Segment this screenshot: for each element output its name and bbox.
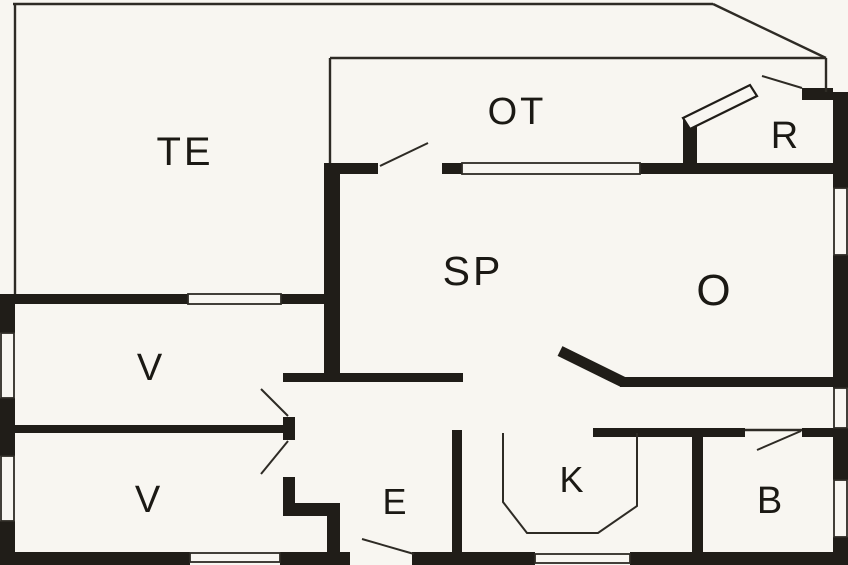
window [1,333,14,398]
wall-segment [330,163,378,174]
room-label-e: E [382,481,409,522]
room-label-v-upper: V [137,347,165,389]
window [1,456,14,521]
window [462,163,640,174]
wall-segment [280,552,350,565]
window [190,553,280,562]
wall-segment [283,373,463,382]
wall-segment [802,428,833,437]
wall-segment [692,428,703,553]
wall-segment [442,163,462,174]
wall-segment [833,255,848,388]
wall-segment [593,428,745,437]
window [188,294,281,304]
wall-segment [630,552,848,565]
wall-segment [283,477,295,507]
wall-segment [620,377,833,387]
wall-segment [412,552,535,565]
window [834,388,847,428]
wall-segment [0,552,190,565]
window [834,188,847,255]
wall-segment [283,503,340,516]
wall-segment [833,537,848,565]
wall-segment [640,163,848,174]
wall-segment [283,417,295,440]
room-label-v-lower: V [135,479,163,521]
room-label-k: K [559,459,586,500]
wall-segment [327,516,340,553]
room-label-b: B [757,480,785,522]
room-label-sp: SP [443,248,504,294]
window [535,554,630,563]
wall-segment [802,88,833,100]
wall-segment [833,428,848,480]
room-label-ot: OT [488,91,547,133]
room-label-r: R [771,115,801,157]
window [834,480,847,537]
wall-segment [0,425,295,433]
wall-segment [324,163,340,378]
room-label-te: TE [156,130,213,174]
wall-segment [452,430,462,553]
floorplan: TEOTRSPOVVEKB [0,0,848,565]
floorplan-svg: TEOTRSPOVVEKB [0,0,848,565]
room-label-o: O [696,266,733,315]
wall-segment [0,294,188,304]
